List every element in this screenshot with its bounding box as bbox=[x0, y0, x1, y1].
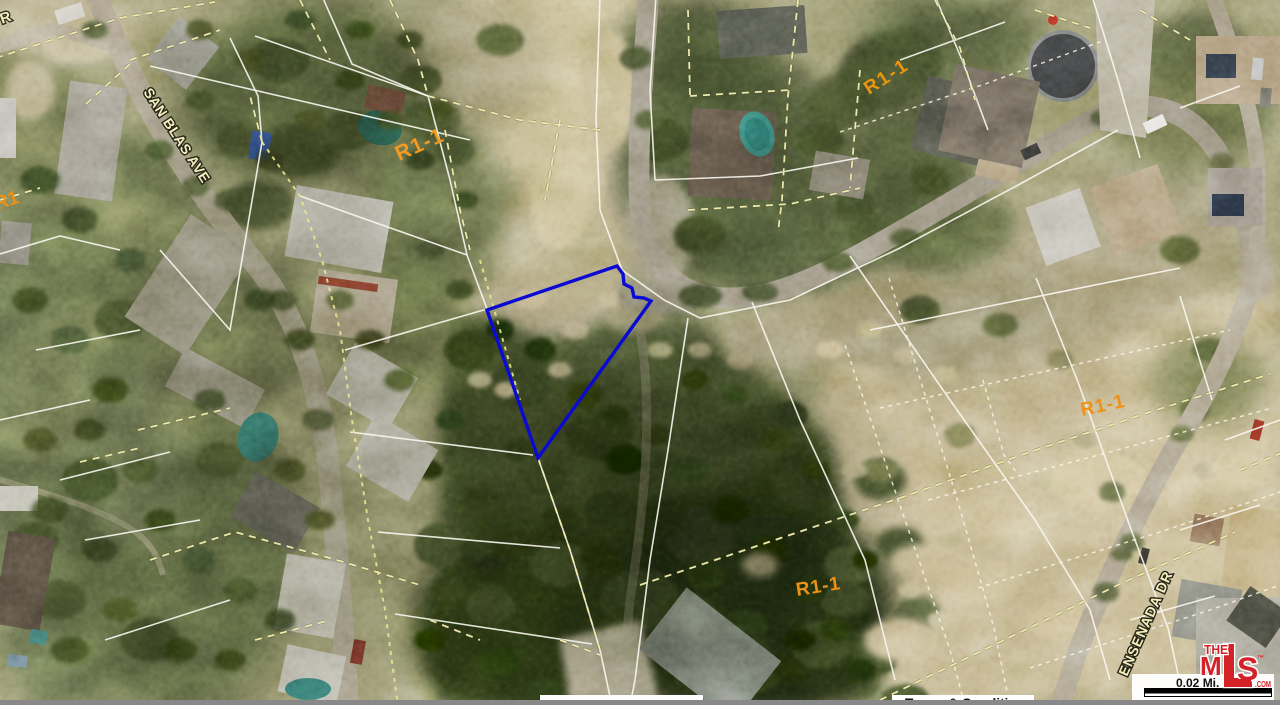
svg-text:™: ™ bbox=[1257, 655, 1264, 662]
svg-text:.COM: .COM bbox=[1255, 679, 1271, 689]
svg-text:THE: THE bbox=[1204, 642, 1228, 657]
svg-text:Terms & Conditions: Terms & Conditions bbox=[905, 696, 1032, 700]
